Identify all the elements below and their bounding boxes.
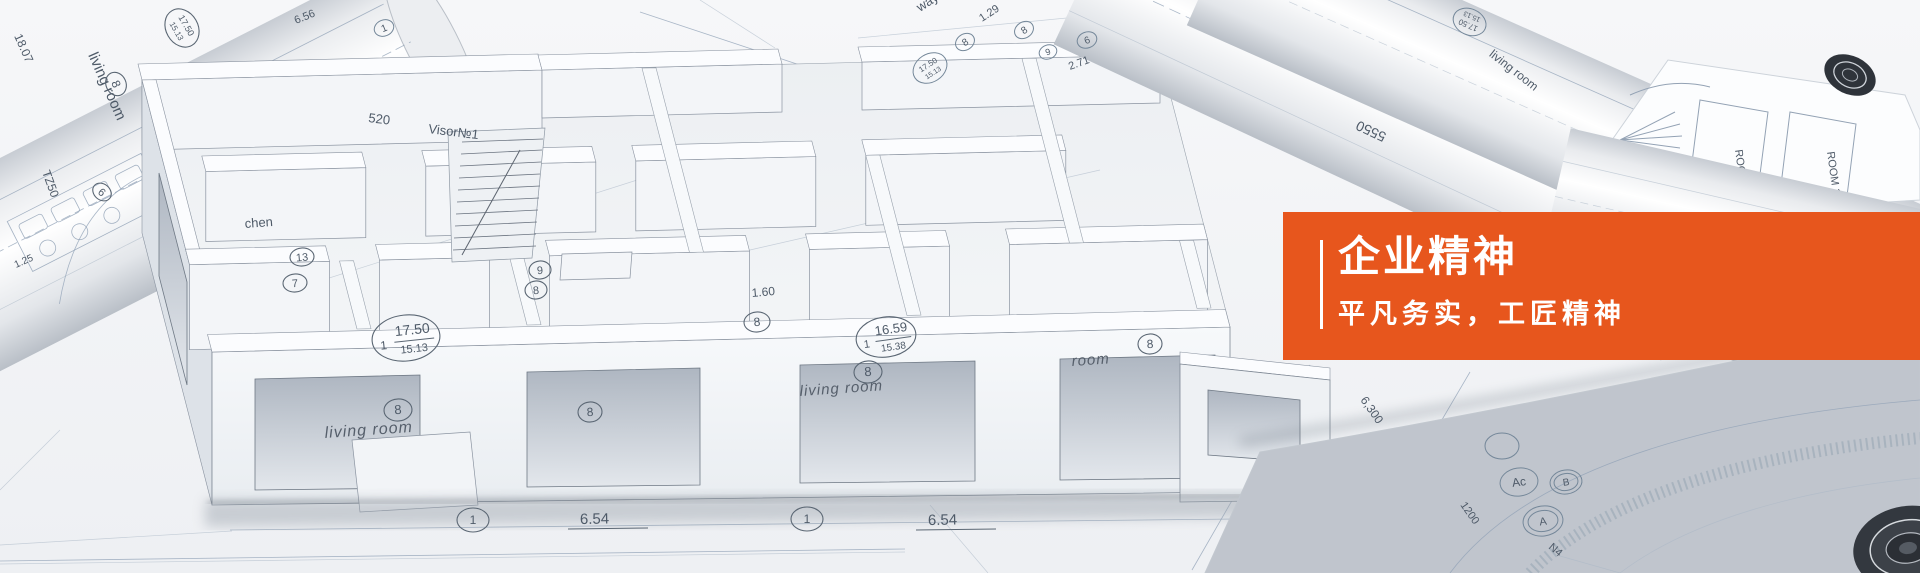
- window-opening: [800, 361, 975, 483]
- svg-text:8: 8: [533, 285, 540, 297]
- svg-text:7: 7: [292, 278, 299, 290]
- dim-654: 6.54: [580, 510, 609, 528]
- kitchen-label: chen: [244, 214, 273, 231]
- svg-text:13: 13: [295, 251, 308, 264]
- slogan-subtitle: 平凡务实，工匠精神: [1338, 300, 1626, 330]
- svg-text:8: 8: [394, 402, 402, 417]
- slogan-panel: 企业精神 平凡务实，工匠精神: [1283, 212, 1920, 360]
- model-front-wall: [208, 310, 1231, 513]
- svg-text:1: 1: [470, 513, 477, 527]
- svg-text:1: 1: [804, 512, 811, 526]
- visor-code: 520: [368, 110, 391, 128]
- dim-654: 6.54: [928, 511, 957, 529]
- staircase: [448, 128, 545, 262]
- svg-text:8: 8: [586, 405, 594, 419]
- room-label: room: [1071, 350, 1110, 370]
- svg-text:8: 8: [1146, 337, 1154, 351]
- slogan-title: 企业精神: [1338, 234, 1518, 280]
- hero-banner: living room 8 18.07 TZ50 17.50 15.13 6 1…: [0, 0, 1920, 573]
- svg-text:Ac: Ac: [1511, 474, 1527, 490]
- building-model: [138, 40, 1330, 527]
- window-opening: [527, 368, 700, 487]
- dim-label: 1.60: [751, 284, 776, 300]
- accent-bar: [1320, 240, 1323, 329]
- svg-text:8: 8: [864, 364, 872, 379]
- svg-text:9: 9: [537, 265, 544, 277]
